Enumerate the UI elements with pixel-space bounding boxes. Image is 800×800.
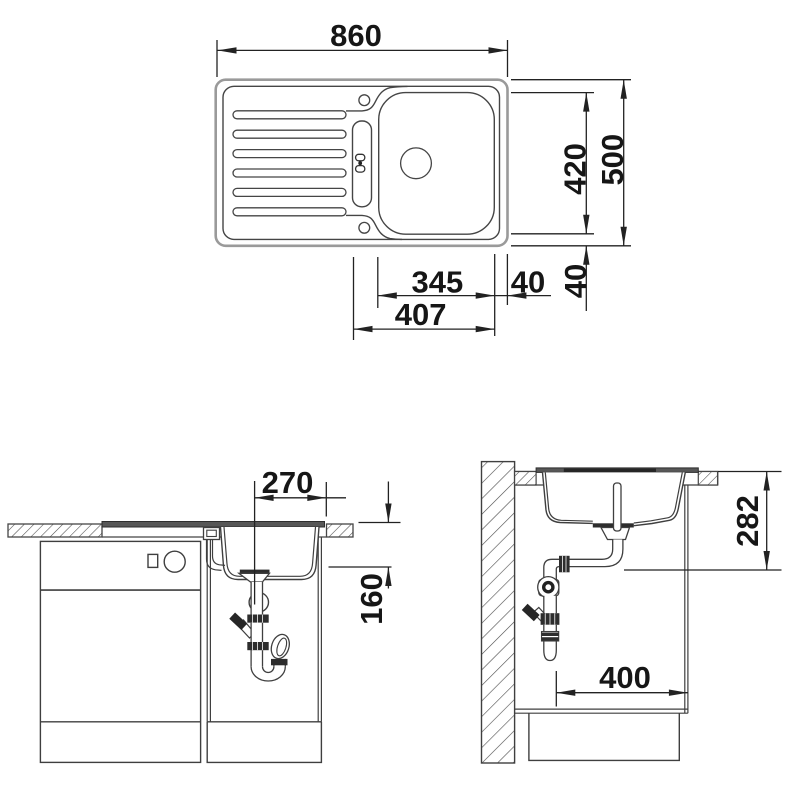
svg-text:500: 500: [595, 134, 630, 186]
svg-text:40: 40: [511, 264, 545, 299]
svg-text:160: 160: [354, 573, 389, 625]
svg-text:40: 40: [558, 264, 593, 298]
svg-text:345: 345: [412, 264, 464, 299]
svg-text:270: 270: [262, 465, 314, 500]
svg-text:860: 860: [330, 18, 382, 53]
svg-text:407: 407: [395, 297, 447, 332]
svg-text:400: 400: [599, 660, 651, 695]
svg-text:282: 282: [730, 495, 765, 547]
svg-text:420: 420: [558, 143, 593, 195]
